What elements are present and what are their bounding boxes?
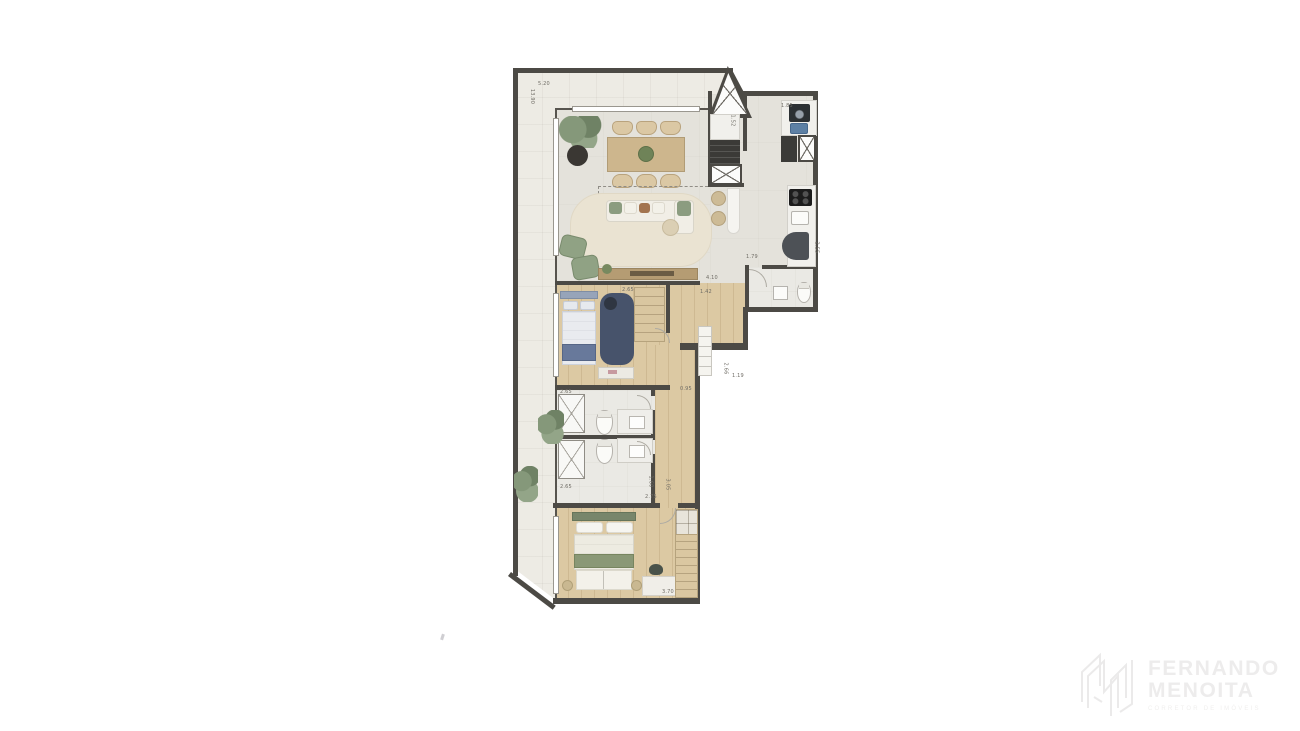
armchair-green	[570, 254, 601, 281]
bed2-foot-pillows	[576, 570, 632, 590]
wall-bedroom1-right	[666, 285, 670, 333]
lavabo-toilet	[797, 282, 811, 303]
bed1-blanket	[562, 344, 596, 361]
column-dark-cabinet	[710, 140, 740, 164]
balcony-plant	[538, 410, 564, 444]
floor-plan: 5.20 13.90 1.85 1.52 1.79 2.55 4.10 2.65…	[510, 60, 824, 616]
dim-label: 1.60	[647, 476, 652, 488]
dim-label: 2.75	[645, 495, 657, 500]
bed2-pillow	[606, 522, 633, 533]
dim-label: 1.79	[746, 255, 758, 260]
dining-chair	[660, 121, 681, 135]
bar-stool	[711, 211, 726, 226]
bath1-vanity	[617, 409, 653, 434]
brand-name-line2: MENOITA	[1148, 680, 1280, 702]
sofa-cushion-white	[624, 202, 637, 214]
dim-label: 2.65	[560, 390, 572, 395]
wall-lavabo-bottom	[745, 307, 818, 312]
dim-label: 2.66	[722, 363, 727, 375]
hall-cabinet	[698, 326, 712, 376]
wall-bath-right-a	[651, 390, 655, 396]
dim-label: 13.90	[529, 89, 534, 104]
dim-label: 2.65	[622, 288, 634, 293]
bed2-headboard	[572, 512, 636, 521]
dim-label: 2.55	[813, 242, 818, 254]
page: { "plan": { "dimensions": [ {"id":"terra…	[0, 0, 1300, 731]
wall-top	[513, 68, 733, 73]
dim-label: 1.52	[729, 115, 734, 127]
bedroom2-window-frame	[553, 516, 559, 594]
dim-label: 4.10	[706, 276, 718, 281]
bath2-toilet	[596, 439, 613, 464]
bed2-throw-blanket	[574, 554, 634, 568]
bed1-pillow	[563, 301, 578, 310]
terrace-floor-left	[515, 70, 557, 601]
laundry-tall-unit	[781, 136, 797, 162]
living-plant	[558, 116, 604, 148]
sofa-cushion-green	[677, 201, 691, 216]
kitchen-sink	[791, 211, 809, 225]
dim-label: 5.20	[538, 82, 550, 87]
dining-chair	[612, 121, 633, 135]
wall-kitchen-top	[743, 91, 818, 96]
dim-label: 1.42	[700, 290, 712, 295]
console-plant	[602, 264, 612, 274]
bed2-pillow	[576, 522, 603, 533]
bed2-pouf	[631, 580, 642, 591]
pouf	[662, 219, 679, 236]
column-counter	[710, 114, 740, 140]
shaft-box-column	[710, 164, 742, 185]
wall-living-bottom	[555, 281, 700, 285]
terrace-top-window-frame	[572, 106, 700, 112]
wall-bath-bedroom2-a	[553, 503, 660, 508]
wall-bottom	[553, 598, 700, 604]
bed1-rug-pouf	[604, 297, 617, 310]
dim-label: 3.05	[664, 479, 669, 491]
refrigerator	[782, 232, 809, 260]
bed1-headboard	[560, 291, 598, 299]
bed1-pillow	[580, 301, 595, 310]
shaft-box-laundry	[798, 135, 816, 162]
bedroom2-vase	[649, 564, 663, 575]
dim-label: 2.65	[560, 485, 572, 490]
wall-step-vertical	[743, 307, 748, 345]
brand-tagline: CORRETOR DE IMÓVEIS	[1148, 706, 1280, 712]
sofa-cushion-green	[609, 202, 622, 214]
brand-name-line1: FERNANDO	[1148, 658, 1280, 680]
corridor-floor	[655, 345, 700, 510]
lavabo-sink	[773, 286, 788, 300]
bar-stool	[711, 191, 726, 206]
dim-label: 1.19	[732, 374, 744, 379]
cooktop-icon	[789, 189, 812, 206]
dining-chair	[636, 121, 657, 135]
wall-bath-bedroom2-b	[678, 503, 698, 508]
console-decor	[630, 271, 674, 276]
sofa-cushion-brown	[639, 203, 650, 213]
table-centerpiece-plant	[638, 146, 654, 162]
dim-label: 1.85	[781, 104, 793, 109]
bath1-toilet	[596, 410, 613, 435]
wall-hall-top-right	[680, 343, 748, 350]
bath2-shower-box	[558, 440, 585, 479]
round-side-table	[567, 145, 588, 166]
sofa-cushion-white	[652, 202, 665, 214]
desk-decor-pink	[608, 370, 617, 374]
brand-watermark: FERNANDO MENOITA CORRETOR DE IMÓVEIS	[1080, 646, 1298, 728]
stray-mark	[440, 634, 445, 641]
dim-label: 0.95	[680, 387, 692, 392]
bedroom1-window-frame	[553, 293, 559, 377]
kitchen-island	[727, 188, 740, 234]
wardrobe-shelf-box	[675, 509, 698, 535]
bed2-pouf	[562, 580, 573, 591]
dim-label: 3.70	[662, 590, 674, 595]
brand-monogram-m-icon	[1080, 650, 1142, 718]
balcony-plant	[514, 466, 538, 502]
laundry-sink	[790, 123, 808, 134]
